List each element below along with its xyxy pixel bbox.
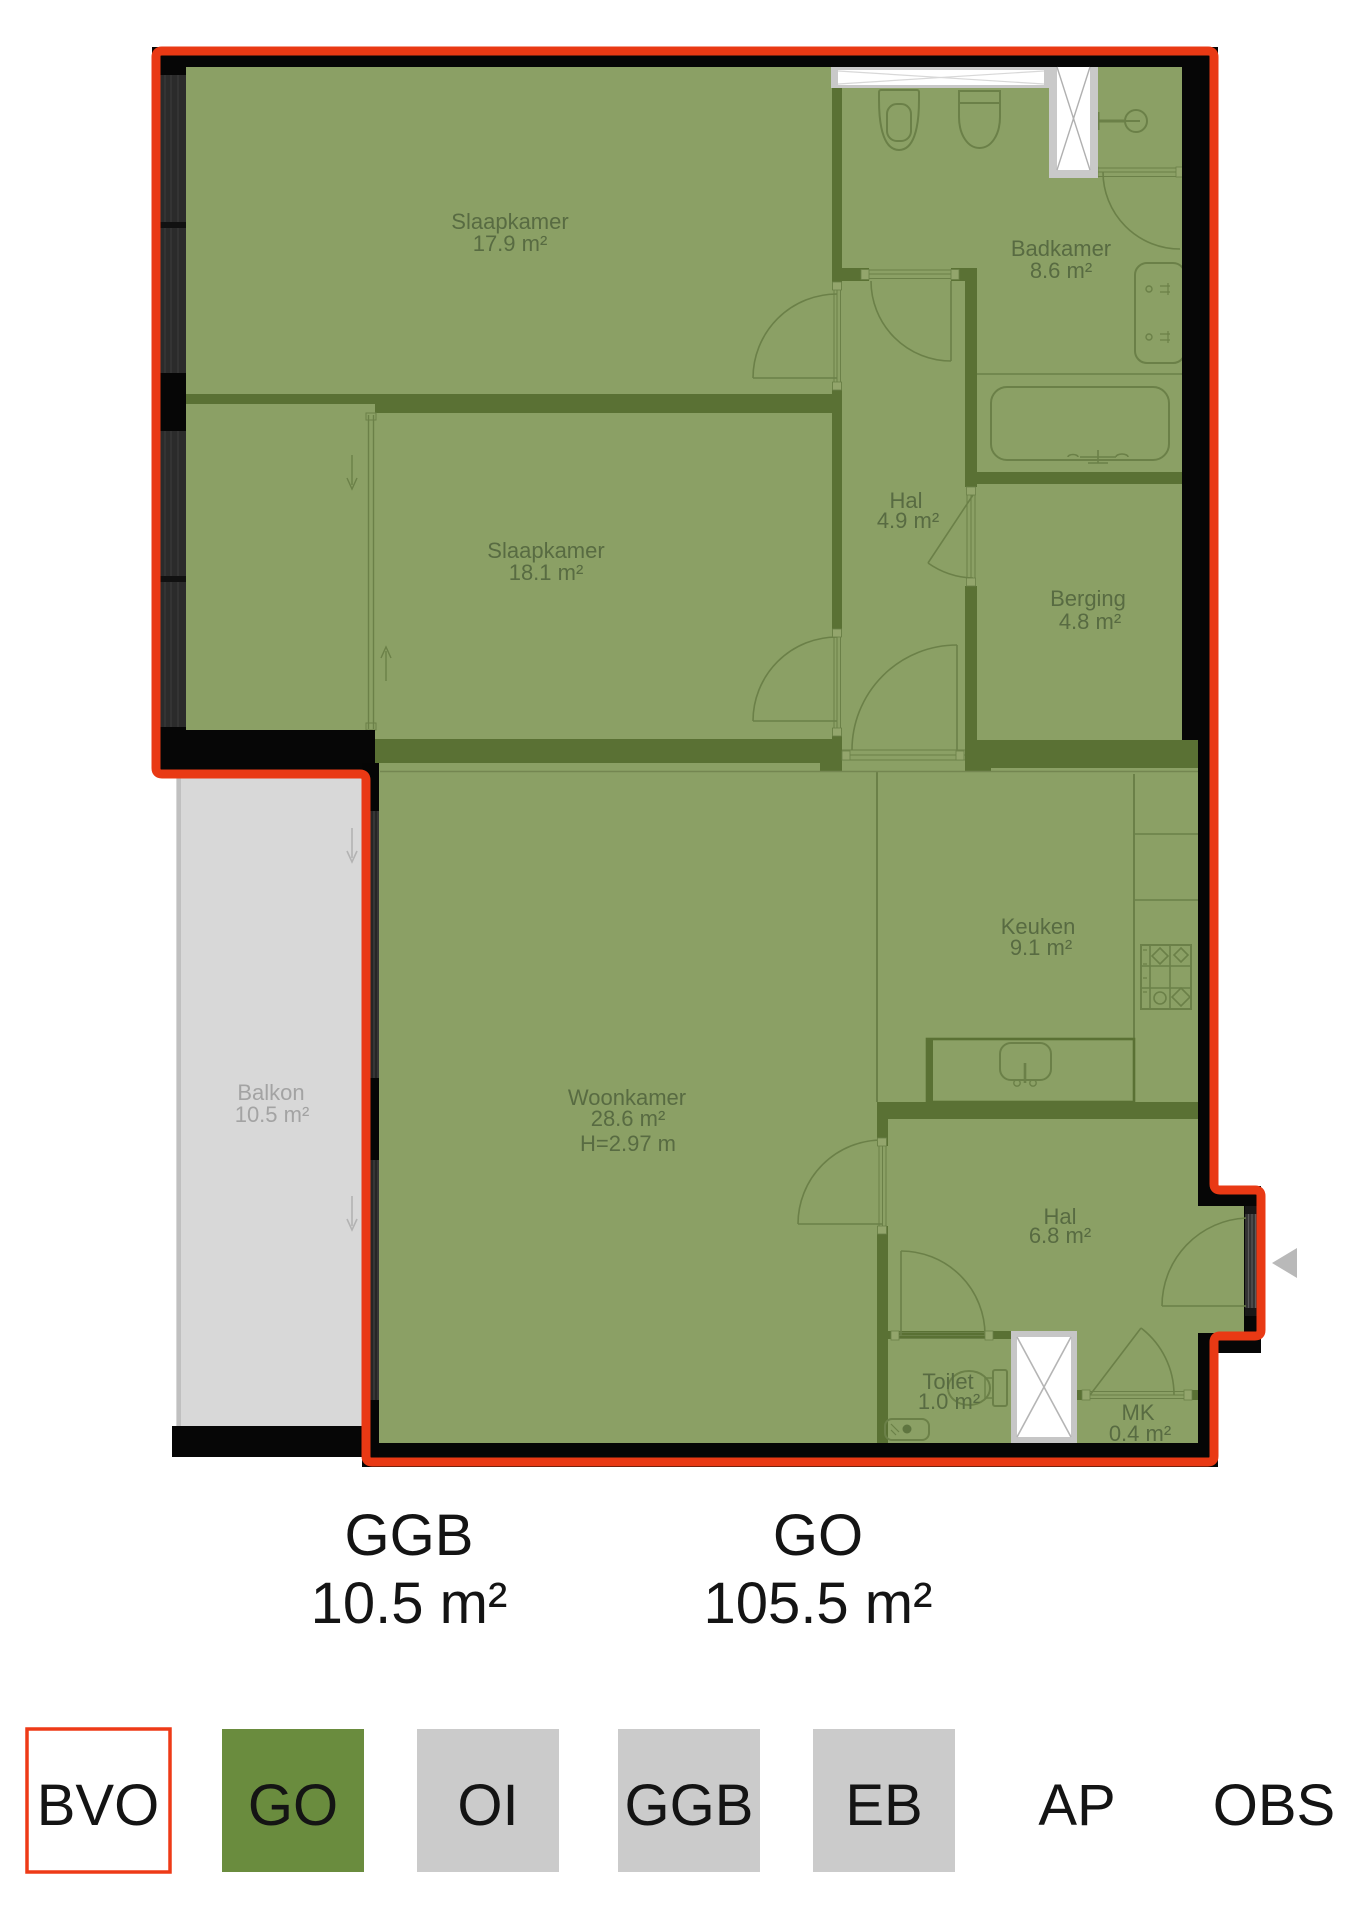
svg-text:OBS: OBS — [1213, 1773, 1336, 1838]
svg-text:AP: AP — [1038, 1773, 1115, 1838]
svg-text:6.8 m²: 6.8 m² — [1029, 1223, 1091, 1248]
svg-text:4.9 m²: 4.9 m² — [877, 508, 939, 533]
svg-text:8.6 m²: 8.6 m² — [1030, 258, 1092, 283]
svg-text:9.1 m²: 9.1 m² — [1010, 935, 1072, 960]
svg-text:GO: GO — [773, 1503, 863, 1568]
svg-text:17.9 m²: 17.9 m² — [473, 231, 548, 256]
svg-text:0.4 m²: 0.4 m² — [1109, 1421, 1171, 1446]
svg-text:H=2.97 m: H=2.97 m — [580, 1131, 676, 1156]
svg-text:10.5 m²: 10.5 m² — [235, 1102, 310, 1127]
svg-text:18.1 m²: 18.1 m² — [509, 560, 584, 585]
svg-text:EB: EB — [845, 1773, 922, 1838]
svg-text:GGB: GGB — [625, 1773, 754, 1838]
svg-text:28.6 m²: 28.6 m² — [591, 1106, 666, 1131]
svg-text:GO: GO — [248, 1773, 338, 1838]
svg-text:OI: OI — [457, 1773, 518, 1838]
svg-text:GGB: GGB — [345, 1503, 474, 1568]
svg-text:105.5 m²: 105.5 m² — [704, 1571, 933, 1636]
svg-text:4.8 m²: 4.8 m² — [1059, 609, 1121, 634]
svg-text:BVO: BVO — [37, 1773, 160, 1838]
svg-text:Berging: Berging — [1050, 586, 1126, 611]
svg-text:10.5 m²: 10.5 m² — [311, 1571, 508, 1636]
svg-text:1.0 m²: 1.0 m² — [918, 1389, 980, 1414]
